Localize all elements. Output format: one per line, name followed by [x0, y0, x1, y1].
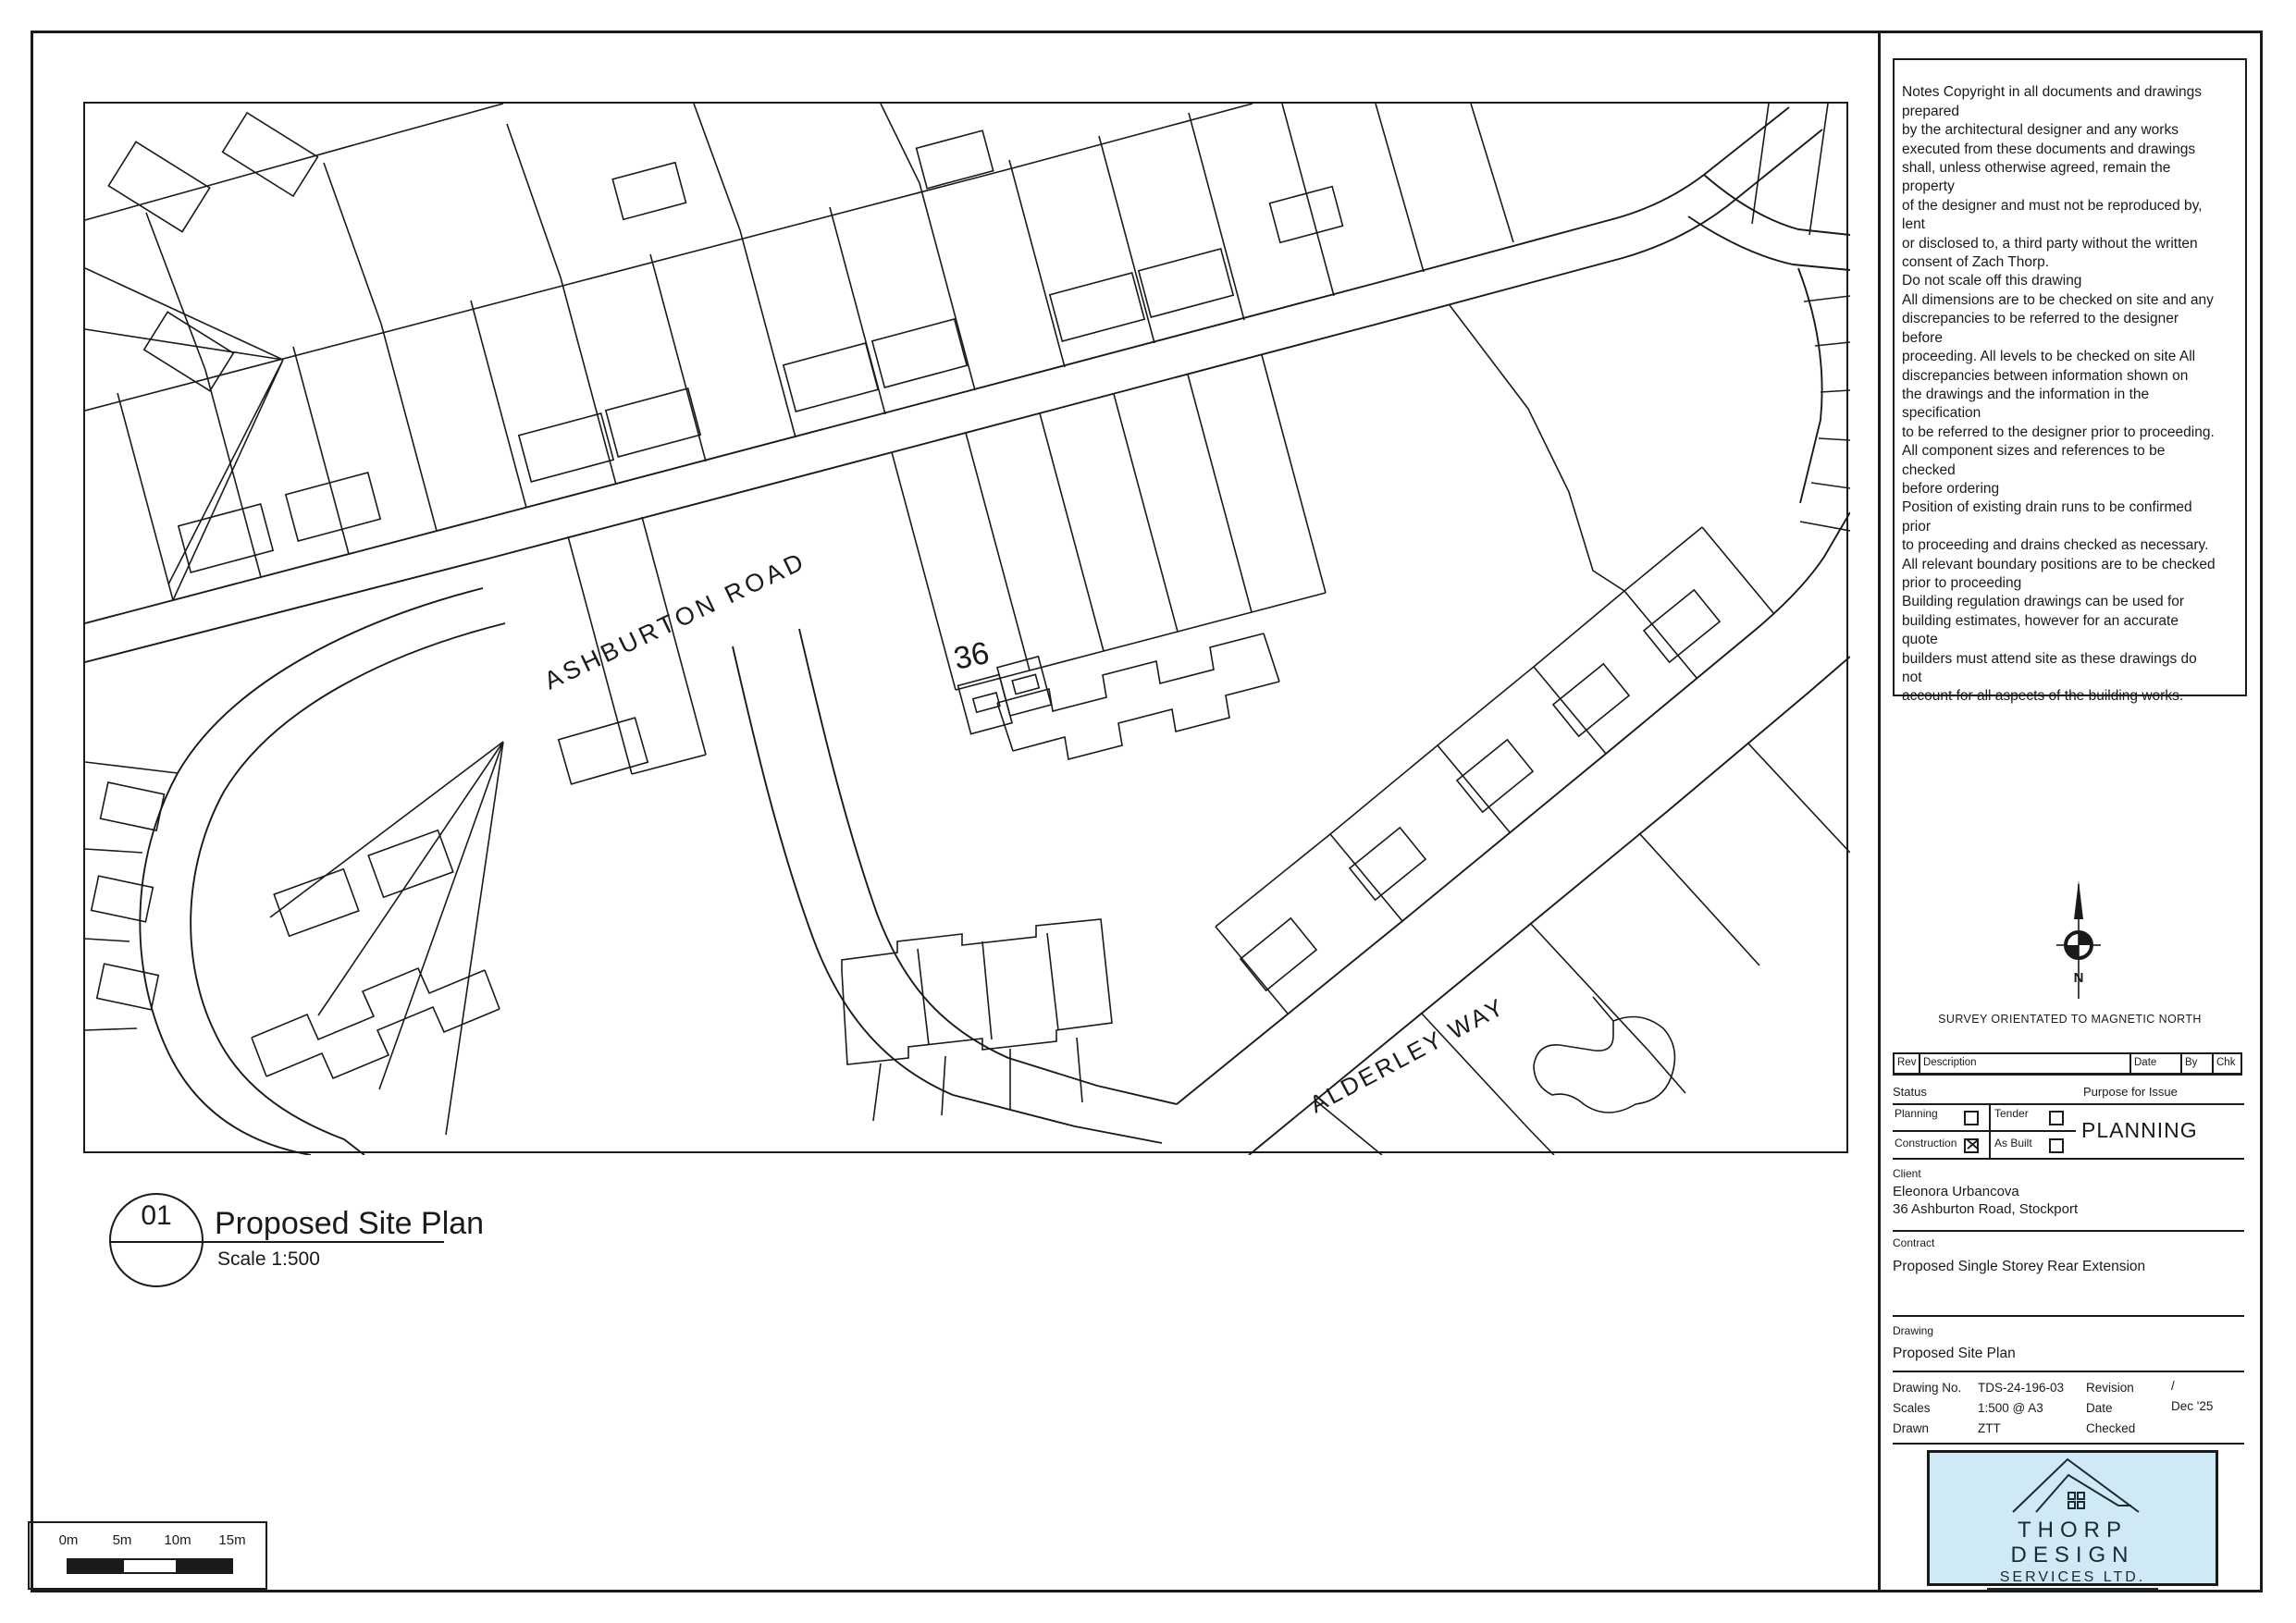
notes-text: Notes Copyright in all documents and dra… [1902, 84, 2216, 704]
client-name: Eleonora Urbancova [1893, 1184, 2019, 1199]
drawn-label: Drawn [1893, 1421, 1929, 1435]
date-value: Dec '25 [2171, 1399, 2213, 1413]
description-col-header: Description [1920, 1054, 2131, 1073]
drawing-sheet: ASHBURTON ROAD ALDERLEY WAY 36 01 Propos… [0, 0, 2296, 1623]
scalebar-label-5: 5m [113, 1532, 132, 1548]
status-rule-bottom [1893, 1158, 2244, 1160]
status-option-planning-label: Planning [1895, 1107, 1938, 1120]
tender-checkbox [2049, 1111, 2064, 1125]
checked-label: Checked [2086, 1421, 2135, 1435]
status-rule-top [1893, 1103, 2244, 1105]
drawing-rule [1893, 1371, 2244, 1372]
contract-value: Proposed Single Storey Rear Extension [1893, 1259, 2145, 1275]
asbuilt-checkbox [2049, 1138, 2064, 1153]
scalebar-segment-white [122, 1558, 178, 1574]
revision-value: / [2171, 1379, 2175, 1393]
revision-table: Rev Description Date By Chk [1893, 1052, 2242, 1076]
north-caption: SURVEY ORIENTATED TO MAGNETIC NORTH [1893, 1013, 2247, 1026]
construction-checkbox: ✕ [1964, 1138, 1979, 1153]
client-rule [1893, 1230, 2244, 1232]
scales-value: 1:500 @ A3 [1978, 1401, 2043, 1415]
drawn-value: ZTT [1978, 1421, 2001, 1435]
revision-label: Revision [2086, 1381, 2134, 1395]
drawing-no-label: Drawing No. [1893, 1381, 1961, 1395]
parcels-layer [85, 104, 1850, 1155]
scalebar-label-10: 10m [164, 1532, 191, 1548]
status-heading: Status [1893, 1085, 1927, 1099]
rev-col-header: Rev [1895, 1054, 1920, 1073]
drawing-heading: Drawing [1893, 1324, 1933, 1337]
planning-checkbox [1964, 1111, 1979, 1125]
north-n-label: N [2074, 970, 2084, 986]
logo-line-thorp: THORP [1930, 1518, 2216, 1543]
page-title-scale: Scale 1:500 [217, 1248, 320, 1271]
status-option-construction-label: Construction [1895, 1137, 1957, 1150]
contract-heading: Contract [1893, 1236, 1934, 1249]
scales-label: Scales [1893, 1401, 1931, 1415]
issue-rule [1893, 1443, 2244, 1445]
ashburton-road-label: ASHBURTON ROAD [540, 547, 811, 695]
purpose-value: PLANNING [2081, 1118, 2198, 1143]
logo-roof-icon [1930, 1457, 2216, 1518]
roads-layer [85, 107, 1850, 1155]
scalebar-label-15: 15m [218, 1532, 245, 1548]
scalebar-label-0: 0m [59, 1532, 79, 1548]
logo-line-services: SERVICES LTD. [1987, 1568, 2159, 1590]
buildings-layer [92, 113, 1720, 1113]
drawing-value: Proposed Site Plan [1893, 1346, 2016, 1362]
status-option-asbuilt-label: As Built [1994, 1137, 2032, 1150]
logo-box: THORP DESIGN SERVICES LTD. [1927, 1450, 2218, 1586]
client-heading: Client [1893, 1167, 1921, 1180]
purpose-heading: Purpose for Issue [2083, 1085, 2178, 1099]
status-option-tender-label: Tender [1994, 1107, 2029, 1120]
drawing-no-value: TDS-24-196-03 [1978, 1381, 2064, 1395]
house-number-label: 36 [951, 635, 993, 677]
north-arrow-icon: N [2051, 879, 2106, 1002]
construction-checkbox-mark: ✕ [1965, 1140, 1979, 1152]
client-address: 36 Ashburton Road, Stockport [1893, 1201, 2078, 1217]
alderley-way-label: ALDERLEY WAY [1305, 992, 1511, 1119]
scalebar-segment-black1 [67, 1558, 122, 1574]
site-plan-drawing: ASHBURTON ROAD ALDERLEY WAY 36 [85, 104, 1850, 1155]
title-column-divider [1878, 31, 1881, 1592]
date-label: Date [2086, 1401, 2113, 1415]
scalebar-box: 0m 5m 10m 15m [28, 1521, 267, 1590]
scalebar-segment-black2 [178, 1558, 233, 1574]
plan-frame: ASHBURTON ROAD ALDERLEY WAY 36 [83, 102, 1848, 1153]
callout-number: 01 [109, 1200, 204, 1232]
chk-col-header: Chk [2214, 1054, 2240, 1073]
logo-line-design: DESIGN [1930, 1543, 2216, 1568]
page-title: Proposed Site Plan [215, 1206, 484, 1242]
date-col-header: Date [2131, 1054, 2182, 1073]
by-col-header: By [2182, 1054, 2214, 1073]
contract-rule [1893, 1315, 2244, 1317]
notes-panel: Notes Copyright in all documents and dra… [1893, 58, 2247, 696]
status-grid-midline [1893, 1130, 2076, 1132]
